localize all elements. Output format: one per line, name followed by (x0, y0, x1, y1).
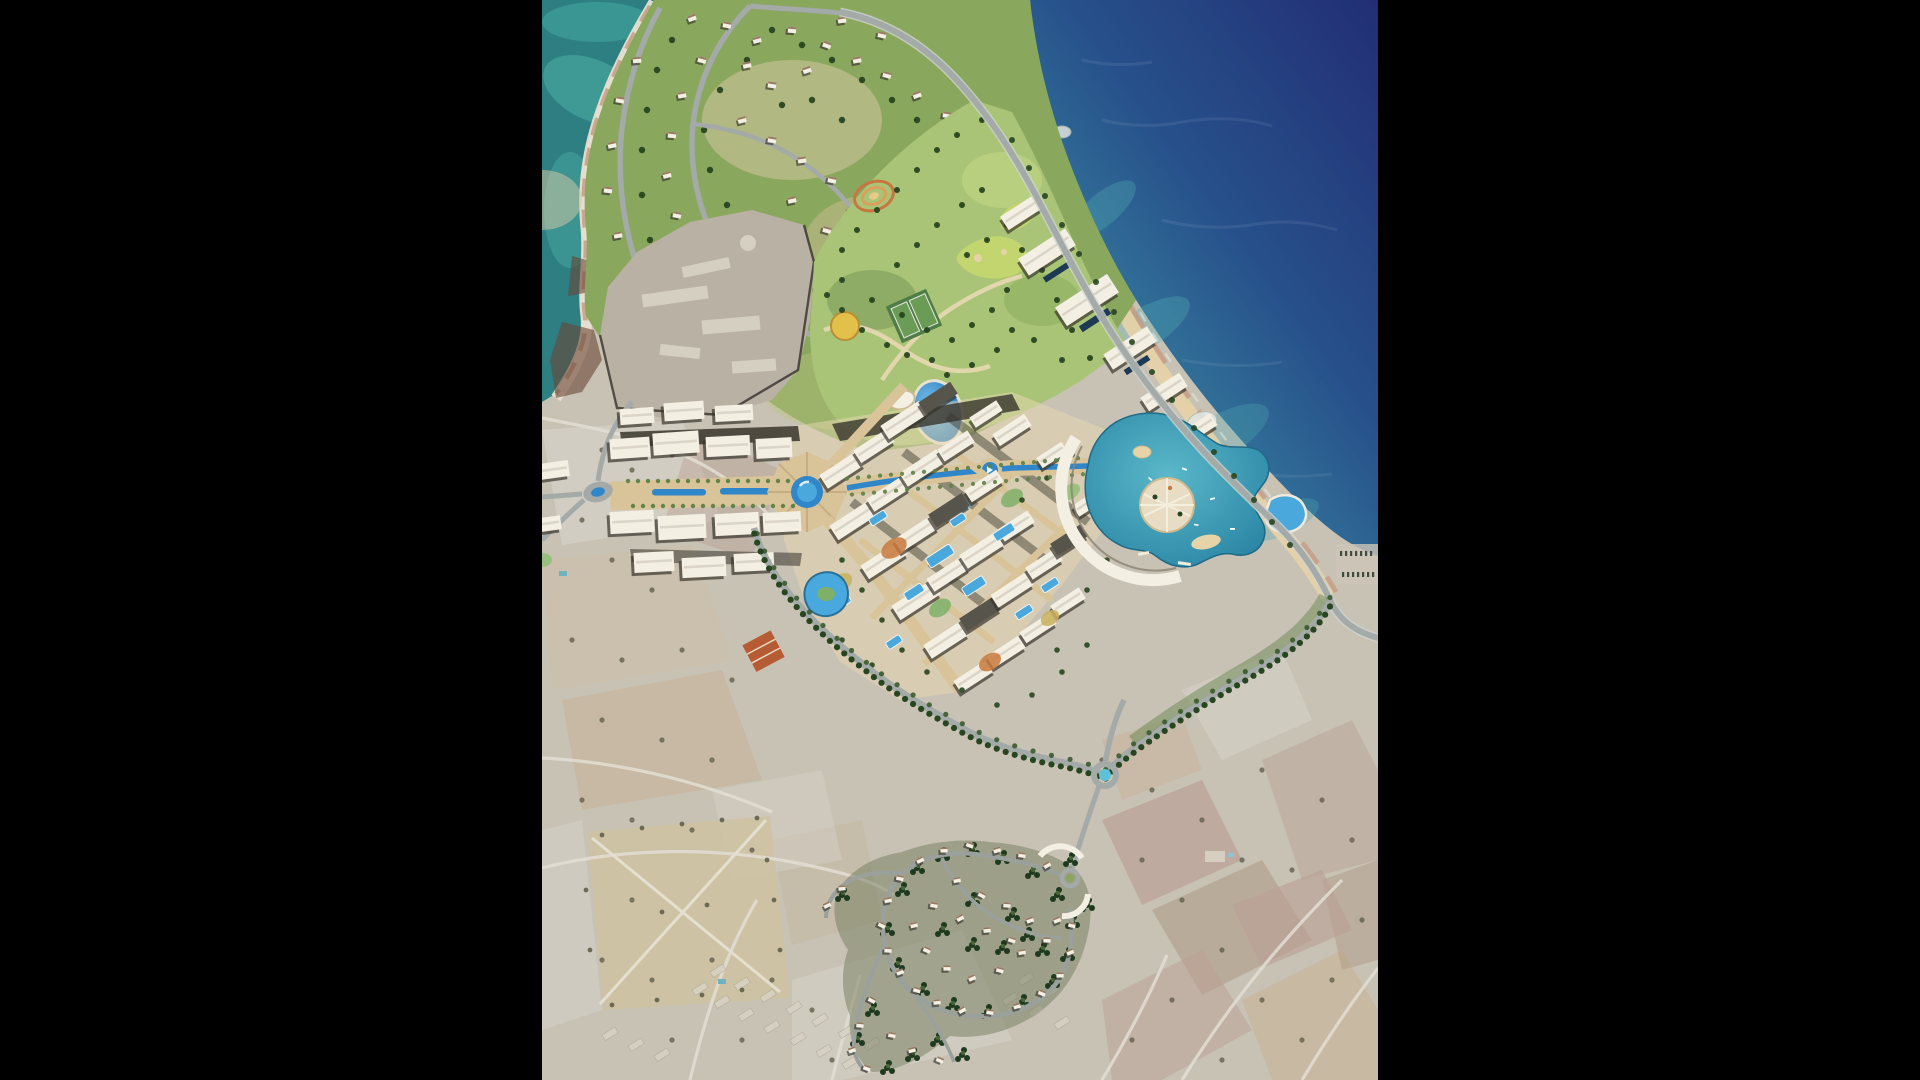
waterpark-feature (804, 572, 848, 616)
farm-tree (1219, 1057, 1224, 1062)
avenue-tree (1218, 692, 1224, 698)
park-tree (969, 322, 975, 328)
avenue-tree (863, 668, 869, 674)
farm-tree (629, 467, 634, 472)
farm-tree (1259, 767, 1264, 772)
median-tree (786, 479, 790, 483)
canal-tree (1043, 459, 1047, 463)
park-tree (884, 342, 890, 348)
avenue-tree (751, 530, 757, 536)
sand-islet (1133, 446, 1151, 458)
village-tree (935, 931, 941, 937)
building (606, 510, 654, 537)
park-tree (1019, 247, 1025, 253)
farm-tree (619, 657, 624, 662)
avenue-tree (806, 618, 812, 624)
resort-tree (1059, 669, 1065, 675)
median-tree (716, 479, 720, 483)
avenue-tree (1030, 748, 1035, 753)
canal-tree (1048, 475, 1052, 479)
avenue-tree (1012, 752, 1018, 758)
median-tree (676, 479, 680, 483)
avenue-tree (1290, 646, 1296, 652)
village-tree (1041, 946, 1045, 950)
parked-tree (1345, 551, 1347, 556)
farm-tree (649, 977, 654, 982)
building (760, 511, 802, 536)
village-tree (955, 1056, 961, 1062)
avenue-tree (1242, 678, 1248, 684)
villa-roof-ridge (1043, 937, 1050, 939)
farm-tree (769, 977, 774, 982)
canal-tree (927, 486, 931, 490)
avenue-tree (771, 565, 776, 570)
avenue-tree (1086, 762, 1091, 767)
avenue-tree (943, 720, 949, 726)
grove-tree (584, 888, 589, 893)
canal-tree (988, 464, 992, 468)
coastal-tree (1231, 473, 1237, 479)
farm-tree (1299, 1037, 1304, 1042)
headland-tree (889, 97, 895, 103)
avenue-tree (834, 644, 840, 650)
median-tree (761, 504, 765, 508)
avenue-tree (1310, 627, 1316, 633)
median-tree (726, 479, 730, 483)
canal-tree (883, 490, 887, 494)
avenue-tree (820, 631, 826, 637)
avenue-tree (1116, 762, 1122, 768)
village-tree (930, 1041, 936, 1047)
boulevard-canal (652, 489, 706, 496)
screenshot-stage: aerial-masterplan-photomontage (0, 0, 1920, 1080)
headland-tree (707, 167, 713, 173)
canal-tree (1010, 462, 1014, 466)
village-tree (1051, 978, 1055, 982)
building (703, 435, 751, 460)
farm-tree (629, 897, 634, 902)
park-tree (954, 132, 960, 138)
canal-tree (916, 487, 920, 491)
avenue-tree (1234, 682, 1240, 688)
village-tree (844, 895, 850, 901)
avenue-tree (968, 734, 974, 740)
coastal-tree (1211, 449, 1217, 455)
farm-tree (649, 587, 654, 592)
boulevard-canal (720, 488, 774, 495)
avenue-tree (848, 656, 854, 662)
farm-tree (1179, 897, 1184, 902)
village-tree (1031, 868, 1035, 872)
canal-tree (982, 481, 986, 485)
avenue-tree (1226, 687, 1232, 693)
avenue-tree (1226, 679, 1231, 684)
building (660, 401, 704, 425)
park-tree (1087, 355, 1093, 361)
building (753, 437, 793, 462)
grove-tree (588, 948, 593, 953)
farm-tree (689, 827, 694, 832)
parked-tree (1355, 551, 1357, 556)
parked-tree (1340, 551, 1342, 556)
village-tree (886, 926, 890, 930)
avenue-tree (976, 738, 982, 744)
avenue-tree (841, 650, 847, 656)
avenue-tree (1021, 754, 1027, 760)
village-tree (880, 1069, 886, 1075)
avenue-tree (1012, 743, 1017, 748)
avenue-tree (960, 721, 965, 726)
avenue-tree (1067, 757, 1072, 762)
avenue-tree (977, 730, 982, 735)
villa-roof-ridge (1056, 972, 1063, 974)
villa-roof-ridge (943, 965, 950, 967)
village-tree (961, 1051, 965, 1055)
avenue-tree (1076, 767, 1082, 773)
avenue-tree (927, 702, 932, 707)
farm-tree (729, 677, 734, 682)
avenue-tree (1131, 741, 1136, 746)
coastal-tree (1042, 193, 1048, 199)
headland-tree (839, 117, 845, 123)
resort-tree (859, 587, 865, 593)
village-tree (1014, 915, 1020, 921)
farm-tree (709, 757, 714, 762)
parked-tree (1357, 572, 1359, 577)
canal-tree (999, 463, 1003, 467)
avenue-tree (1178, 709, 1183, 714)
marina-island (1140, 478, 1194, 532)
avenue-tree (1162, 728, 1168, 734)
coastal-tree (1149, 369, 1155, 375)
farm-tree (1359, 917, 1364, 922)
existing-pool (718, 979, 726, 984)
avenue-tree (1146, 730, 1151, 735)
avenue-tree (1116, 753, 1121, 758)
coastal-tree (1129, 339, 1135, 345)
canal-tree (1032, 460, 1036, 464)
median-tree (756, 479, 760, 483)
park-tree (1054, 297, 1060, 303)
canal-tree (861, 491, 865, 495)
avenue-tree (834, 636, 839, 641)
median-tree (746, 479, 750, 483)
canal-tree (894, 489, 898, 493)
park-tree (914, 167, 920, 173)
building (631, 551, 675, 576)
grove-tree (778, 948, 783, 953)
resort-tree (839, 557, 845, 563)
grove-field (587, 816, 790, 1010)
village-tree (1060, 956, 1066, 962)
resort-tree (1084, 642, 1090, 648)
canal-tree (933, 469, 937, 473)
median-tree (696, 479, 700, 483)
median-tree (666, 479, 670, 483)
village-tree (1069, 856, 1073, 860)
median-tree (721, 504, 725, 508)
avenue-tree (1039, 759, 1045, 765)
avenue-tree (827, 638, 833, 644)
headland-tree (799, 42, 805, 48)
resort-tree (1084, 587, 1090, 593)
avenue-tree (782, 581, 787, 586)
median-tree (641, 504, 645, 508)
avenue-tree (934, 716, 940, 722)
avenue-tree (1169, 723, 1175, 729)
park-tree (929, 357, 935, 363)
avenue-tree (856, 662, 862, 668)
canal-tree (900, 472, 904, 476)
village-tree (901, 886, 905, 890)
headland-tree (829, 57, 835, 63)
avenue-tree (766, 565, 772, 571)
avenue-tree (776, 582, 782, 588)
median-tree (776, 479, 780, 483)
canal-tree (1081, 472, 1085, 476)
median-tree (626, 479, 630, 483)
park-tree (924, 327, 930, 333)
headland-tree (779, 102, 785, 108)
avenue-tree (871, 674, 877, 680)
village-tree (921, 986, 925, 990)
yellow-feature (831, 312, 859, 340)
median-tree (661, 504, 665, 508)
avenue-tree (1304, 625, 1309, 630)
grove-tree (700, 993, 705, 998)
coastal-tree (1169, 397, 1175, 403)
headland-tree (769, 27, 775, 33)
village-tree (1004, 948, 1010, 954)
canal-tree (1004, 479, 1008, 483)
avenue-tree (918, 706, 924, 712)
park-tree (959, 202, 965, 208)
village-tree (835, 896, 841, 902)
avenue-tree (864, 660, 869, 665)
canal-tree (911, 471, 915, 475)
median-tree (631, 504, 635, 508)
median-tree (711, 504, 715, 508)
coastal-tree (1009, 137, 1015, 143)
coastal-tree (1269, 519, 1275, 525)
avenue-tree (820, 623, 825, 628)
avenue-tree (902, 696, 908, 702)
avenue-tree (1266, 663, 1272, 669)
avenue-tree (1274, 657, 1280, 663)
park-tree (839, 277, 845, 283)
farm-tree (679, 647, 684, 652)
canal-tree (867, 475, 871, 479)
farm-tree (1169, 997, 1174, 1002)
avenue-tree (754, 540, 760, 546)
avenue-tree (1322, 612, 1328, 618)
village-tree (896, 961, 900, 965)
resort-tree (1054, 647, 1060, 653)
village-tree (971, 941, 975, 945)
resort-tree (1029, 692, 1035, 698)
grove-tree (772, 898, 777, 903)
masterplan-aerial-figure: aerial-masterplan-photomontage (542, 0, 1378, 1080)
avenue-tree (994, 746, 1000, 752)
village-tree (1025, 873, 1031, 879)
headland-tree (639, 192, 645, 198)
avenue-tree (1210, 688, 1215, 693)
village-tree (874, 1010, 880, 1016)
avenue-tree (1067, 765, 1073, 771)
avenue-tree (894, 691, 900, 697)
village-tree (936, 1036, 940, 1040)
avenue-tree (894, 682, 899, 687)
canal-tree (971, 482, 975, 486)
canal-tree (977, 465, 981, 469)
village-tree (871, 1006, 875, 1010)
headland-tree (639, 147, 645, 153)
coastal-tree (1287, 542, 1293, 548)
avenue-tree (1317, 611, 1322, 616)
resort-tree (1019, 497, 1025, 503)
park-tree (904, 352, 910, 358)
park-tree (949, 337, 955, 343)
parked-tree (1362, 572, 1364, 577)
resort-tree (959, 687, 965, 693)
avenue-tree (926, 711, 932, 717)
grove-tree (610, 1003, 615, 1008)
grove-tree (720, 818, 725, 823)
village-tree (1029, 935, 1035, 941)
headland-tree (644, 107, 650, 113)
canal-tree (922, 470, 926, 474)
avenue-tree (1210, 697, 1216, 703)
avenue-tree (800, 611, 806, 617)
canal-tree (845, 476, 849, 480)
avenue-tree (1304, 633, 1310, 639)
coastal-tree (1191, 425, 1197, 431)
village-tree (974, 945, 980, 951)
village-tree (1063, 861, 1069, 867)
park-tree (979, 187, 985, 193)
canal-tree (1015, 478, 1019, 482)
avenue-tree (782, 589, 788, 595)
building (649, 430, 700, 458)
avenue-tree (1258, 668, 1264, 674)
existing-pool (559, 571, 567, 576)
village-tree (1011, 911, 1015, 915)
farm-tree (1129, 1037, 1134, 1042)
headland-tree (914, 117, 920, 123)
avenue-tree (910, 701, 916, 707)
farm-tree (599, 957, 604, 962)
median-tree (736, 479, 740, 483)
median-tree (741, 504, 745, 508)
village-tree (905, 1056, 911, 1062)
coastal-tree (1026, 165, 1032, 171)
farm-tree (739, 1037, 744, 1042)
avenue-tree (1146, 739, 1152, 745)
village-tree (889, 1068, 895, 1074)
east-parking (1336, 544, 1378, 584)
park-tree (934, 222, 940, 228)
parked-tree (1360, 551, 1362, 556)
canal-tree (1021, 461, 1025, 465)
farm-tree (1289, 867, 1294, 872)
canal-tree (955, 467, 959, 471)
park-tree (914, 242, 920, 248)
avenue-tree (1154, 733, 1160, 739)
median-tree (681, 504, 685, 508)
canal-tree (850, 492, 854, 496)
grove-tree (705, 903, 710, 908)
village-tree (914, 1055, 920, 1061)
parked-tree (1352, 572, 1354, 577)
park-tree (994, 347, 1000, 353)
farm-tree (669, 1037, 674, 1042)
avenue-tree (1327, 595, 1332, 600)
median-tree (781, 504, 785, 508)
avenue-tree (813, 625, 819, 631)
avenue-tree (787, 597, 793, 603)
avenue-tree (1193, 707, 1199, 713)
farm-tree (629, 817, 634, 822)
median-tree (701, 504, 705, 508)
park-tree (934, 147, 940, 153)
farm-tree (1319, 797, 1324, 802)
village-tree (889, 930, 895, 936)
farm-tree (599, 717, 604, 722)
park-tree (874, 207, 880, 213)
avenue-tree (1058, 763, 1064, 769)
grove-tree (600, 833, 605, 838)
canal-tree (1026, 477, 1030, 481)
village-tree (1034, 872, 1040, 878)
park-tree (944, 372, 950, 378)
median-tree (636, 479, 640, 483)
avenue-tree (1048, 761, 1054, 767)
avenue-tree (1194, 699, 1199, 704)
village-tree (1056, 891, 1060, 895)
canal-tree (878, 474, 882, 478)
farm-tree (1139, 857, 1144, 862)
village-tree (1021, 998, 1025, 1002)
canal-tree (872, 491, 876, 495)
avenue-tree (1138, 744, 1144, 750)
parked-tree (1367, 572, 1369, 577)
farm-tree (609, 557, 614, 562)
parked-tree (1365, 551, 1367, 556)
avenue-tree (1162, 719, 1167, 724)
building (606, 437, 650, 463)
village-tree (995, 949, 1001, 955)
headland-tree (717, 87, 723, 93)
resort-tree (879, 617, 885, 623)
canal-tree (856, 475, 860, 479)
village-tree (904, 890, 910, 896)
parked-tree (1372, 572, 1374, 577)
median-tree (686, 479, 690, 483)
median-tree (731, 504, 735, 508)
median-tree (691, 504, 695, 508)
resort-tree (994, 702, 1000, 708)
avenue-tree (1243, 669, 1248, 674)
avenue-tree (1327, 603, 1333, 609)
avenue-tree (849, 648, 854, 653)
grove-tree (755, 816, 760, 821)
coastal-tree (1093, 279, 1099, 285)
avenue-tree (951, 725, 957, 731)
avenue-tree (879, 671, 884, 676)
park-tree (839, 307, 845, 313)
villa-roof-ridge (940, 847, 947, 849)
village-tree (1072, 860, 1078, 866)
